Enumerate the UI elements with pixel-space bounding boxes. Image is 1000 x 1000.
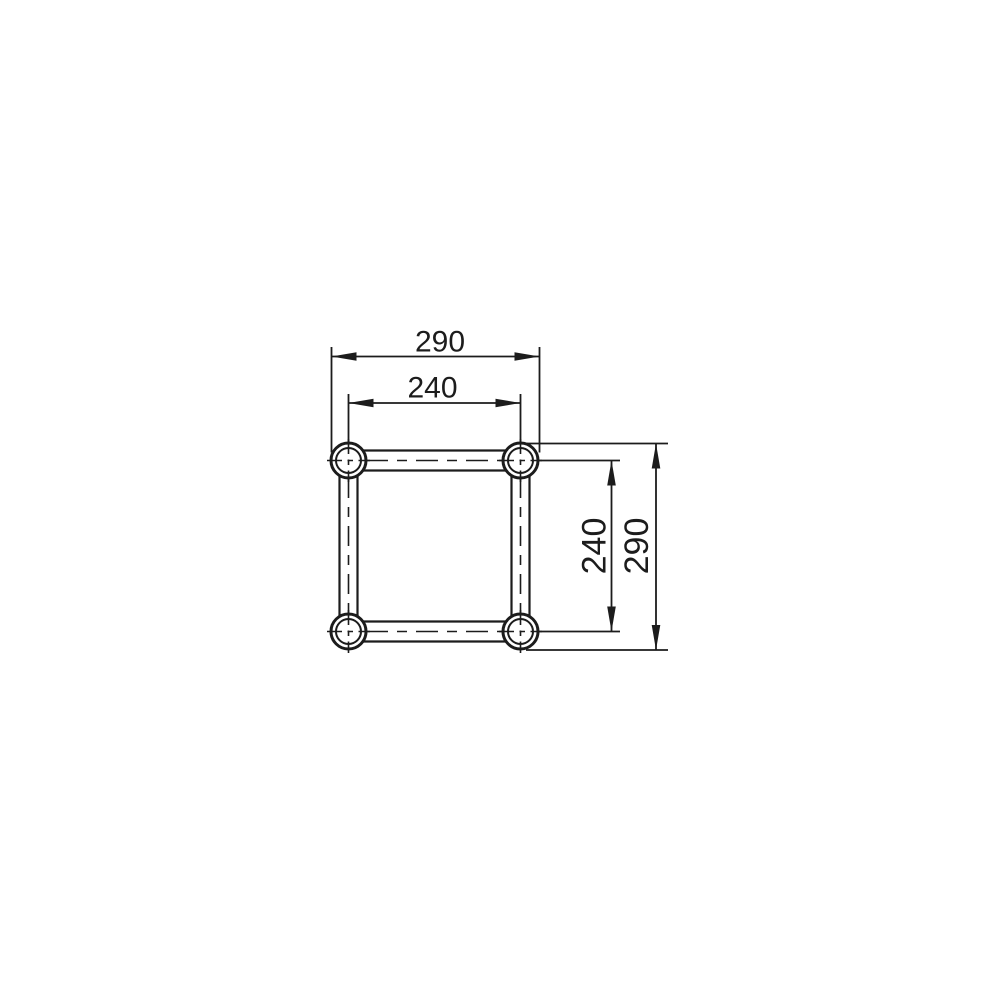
drawing-page: 290 240 240 290: [0, 0, 1000, 1000]
arrowhead-left-icon: [332, 352, 357, 361]
truss-cross-section-drawing: 290 240 240 290: [0, 0, 1000, 1000]
arrowhead-down-icon: [607, 607, 616, 632]
dimension-label-inner-height: 240: [576, 518, 614, 575]
arrowhead-up-icon: [607, 461, 616, 486]
arrowhead-right-icon: [515, 352, 540, 361]
arrowhead-down-icon: [652, 625, 661, 650]
dimension-inner-width: 240: [349, 372, 521, 443]
dimension-inner-height: 240: [539, 461, 620, 632]
dimension-label-outer-width: 290: [415, 326, 465, 359]
chord-tubes: [331, 443, 538, 649]
dimension-label-outer-height: 290: [618, 518, 656, 575]
brace-tubes: [340, 451, 530, 642]
arrowhead-up-icon: [652, 444, 661, 469]
arrowhead-right-icon: [496, 399, 521, 408]
arrowhead-left-icon: [349, 399, 374, 408]
dimension-label-inner-width: 240: [407, 372, 457, 405]
